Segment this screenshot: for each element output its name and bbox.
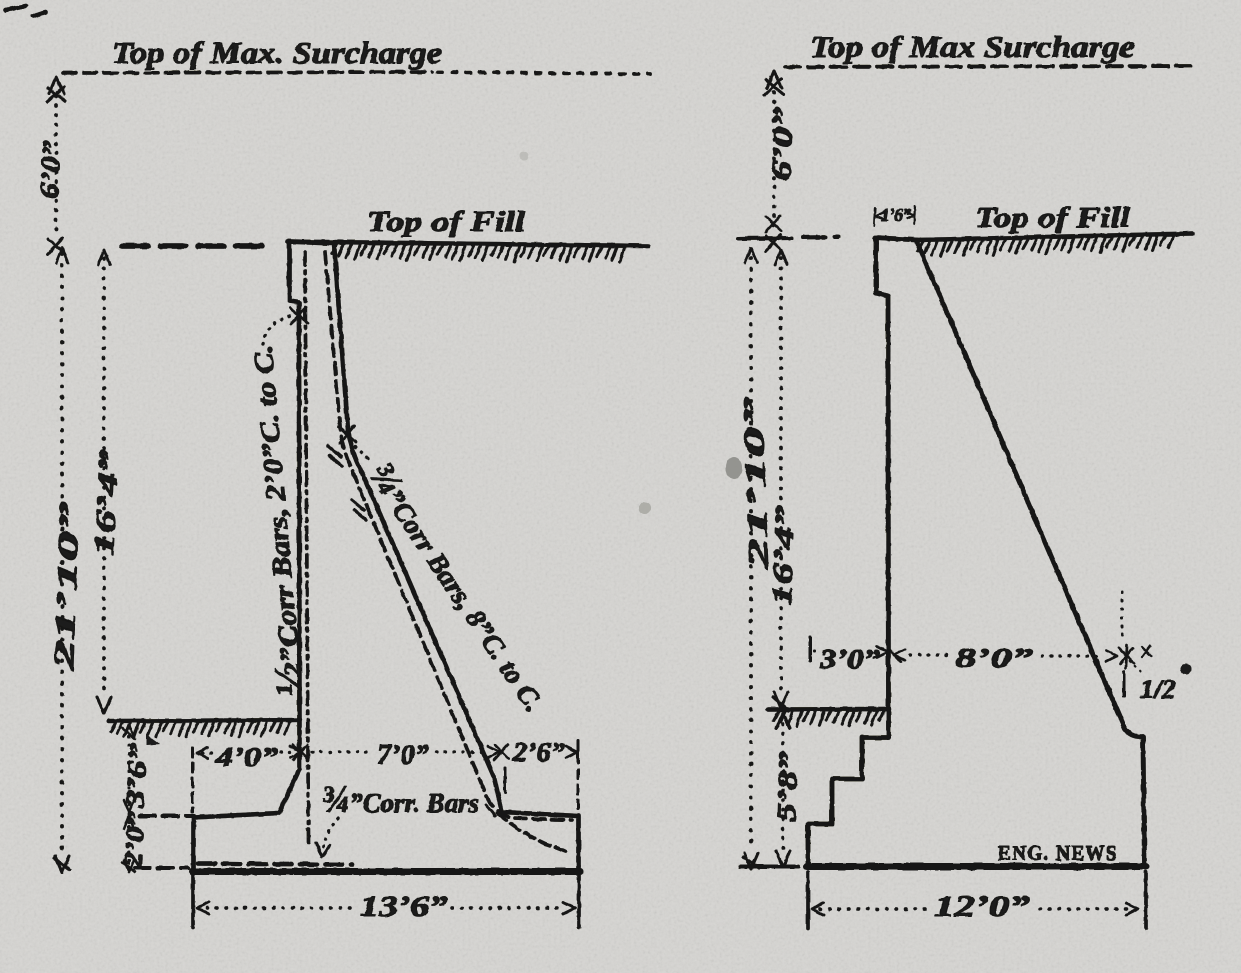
svg-text:Top of Fill: Top of Fill [975, 202, 1131, 234]
svg-text:3’0”: 3’0” [819, 644, 881, 674]
svg-text:12’0”: 12’0” [934, 890, 1030, 923]
svg-text:Top of Max Surcharge: Top of Max Surcharge [810, 29, 1135, 64]
svg-text:21’10”: 21’10” [49, 501, 86, 672]
svg-text:5’8”: 5’8” [771, 751, 803, 823]
svg-text:8’0”: 8’0” [955, 643, 1034, 673]
svg-text:2’0”: 2’0” [120, 810, 151, 870]
svg-text:13’6”: 13’6” [360, 890, 448, 923]
svg-text:16’4”: 16’4” [89, 449, 126, 556]
svg-text:6’0”: 6’0” [766, 105, 799, 181]
svg-text:Top of Fill: Top of Fill [367, 206, 526, 238]
svg-text:16’4”: 16’4” [767, 505, 801, 606]
svg-text:1/2: 1/2 [1140, 674, 1176, 704]
svg-text:4’0”: 4’0” [215, 742, 279, 772]
svg-text:6’0”: 6’0” [34, 139, 67, 199]
svg-text:1’6”: 1’6” [881, 205, 911, 225]
svg-text:3’6”: 3’6” [120, 743, 153, 810]
svg-text:2’6”: 2’6” [512, 737, 566, 767]
svg-text:7’0”: 7’0” [377, 740, 429, 771]
svg-text:Top of Max. Surcharge: Top of Max. Surcharge [112, 35, 442, 70]
svg-text:ENG. NEWS: ENG. NEWS [998, 841, 1118, 865]
